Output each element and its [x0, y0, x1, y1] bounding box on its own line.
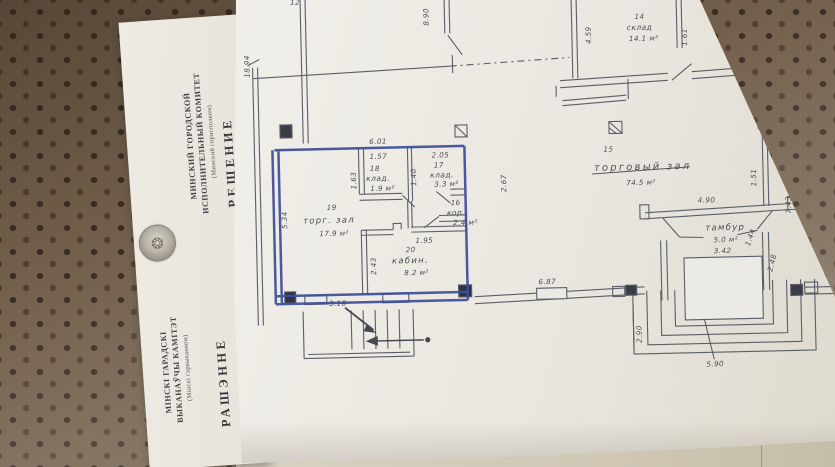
org-name-russian-sub: (Минский горисполком) — [206, 105, 218, 179]
org-name-belarusian-sub: (Мінскі гарвыканком) — [182, 334, 194, 401]
room-13-label: склад — [719, 27, 745, 37]
room-13-number: 13 — [726, 16, 736, 25]
doc-title-belarusian: РАШЭННЕ — [213, 337, 234, 427]
room-13-area: 14.8 м² — [721, 37, 751, 47]
dim-1-6: 1.6 — [771, 78, 786, 92]
photo-of-floor-plan-documents: МІНСКІ ГАРАДСКІ ВЫКАНАЎЧЫ КАМІТЭТ (Мінск… — [0, 0, 835, 467]
paper-shading — [232, 0, 835, 467]
coat-of-arms-emblem-icon: ❂ — [138, 223, 177, 262]
floor-plan-sheet: 3.73 3.83 12 14 склад 14.1 м² 13 склад 1… — [232, 0, 835, 467]
dim-3-83: 3.83 — [712, 0, 730, 7]
